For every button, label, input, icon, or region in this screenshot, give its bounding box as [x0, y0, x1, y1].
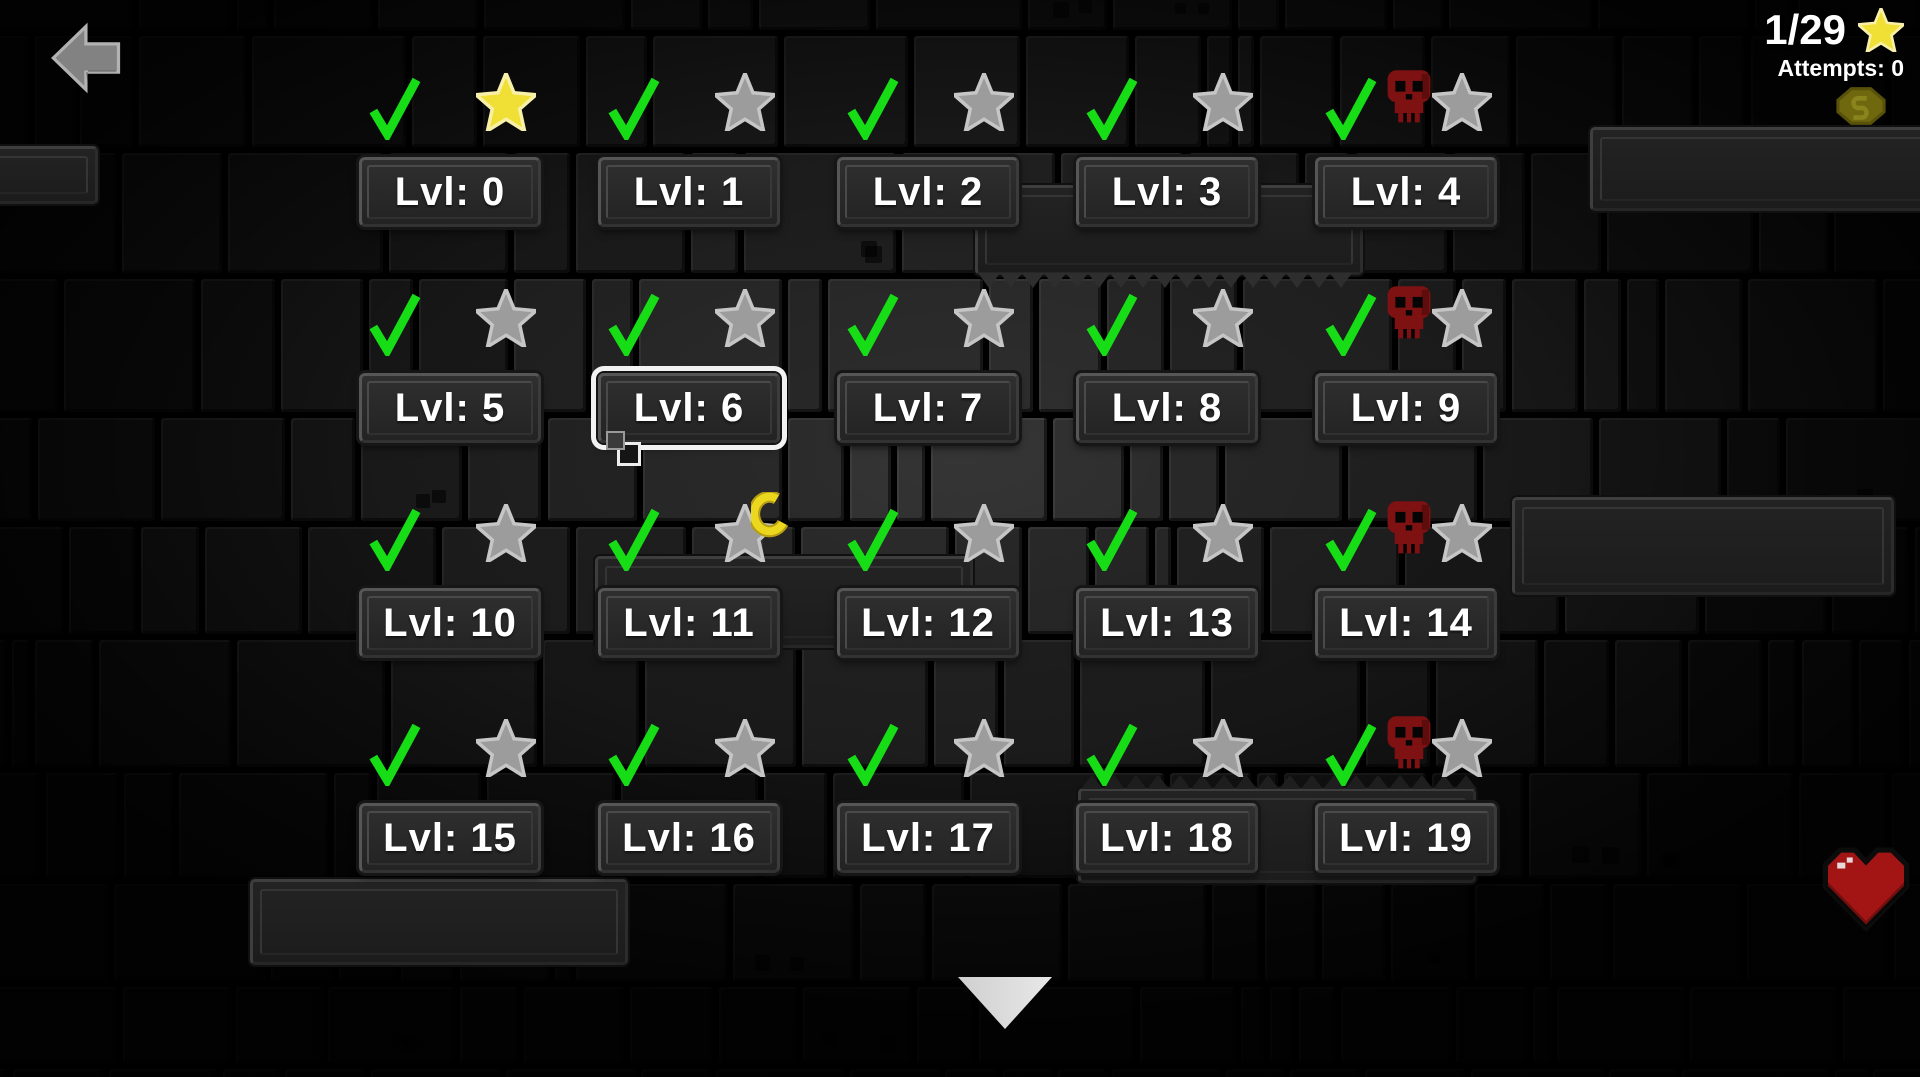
- level-button[interactable]: Lvl: 16: [598, 803, 780, 873]
- level-button[interactable]: Lvl: 6: [598, 373, 780, 443]
- level-button[interactable]: Lvl: 0: [359, 157, 541, 227]
- skull-icon: [1384, 65, 1434, 129]
- gold-star-icon: [476, 73, 536, 131]
- checkmark-icon: [368, 78, 422, 140]
- level-select-screen: Lvl: 0Lvl: 1Lvl: 2Lvl: 3Lvl: 4Lvl: 5Lvl:…: [0, 0, 1920, 1077]
- level-label: Lvl: 15: [383, 816, 517, 861]
- gray-star-icon: [715, 73, 775, 131]
- level-button[interactable]: Lvl: 4: [1315, 157, 1497, 227]
- checkmark-icon: [846, 78, 900, 140]
- level-label: Lvl: 16: [622, 816, 756, 861]
- checkmark-icon: [607, 509, 661, 571]
- gray-star-icon: [1193, 719, 1253, 777]
- gray-star-icon: [1193, 73, 1253, 131]
- level-label: Lvl: 4: [1351, 170, 1461, 215]
- level-button[interactable]: Lvl: 17: [837, 803, 1019, 873]
- level-label: Lvl: 2: [873, 170, 983, 215]
- skull-icon: [1384, 711, 1434, 775]
- checkmark-icon: [1324, 78, 1378, 140]
- checkmark-icon: [846, 509, 900, 571]
- level-button[interactable]: Lvl: 14: [1315, 588, 1497, 658]
- coin-icon: [751, 492, 789, 540]
- level-button[interactable]: Lvl: 10: [359, 588, 541, 658]
- skull-icon: [1384, 496, 1434, 560]
- star-counter: 1/29: [1764, 6, 1904, 54]
- checkmark-icon: [368, 294, 422, 356]
- level-button[interactable]: Lvl: 11: [598, 588, 780, 658]
- coin-icon: [1836, 86, 1886, 126]
- gray-star-icon: [476, 504, 536, 562]
- level-button[interactable]: Lvl: 7: [837, 373, 1019, 443]
- level-label: Lvl: 10: [383, 601, 517, 646]
- checkmark-icon: [1085, 724, 1139, 786]
- checkmark-icon: [846, 724, 900, 786]
- level-button[interactable]: Lvl: 5: [359, 373, 541, 443]
- level-label: Lvl: 11: [623, 601, 755, 646]
- level-button[interactable]: Lvl: 18: [1076, 803, 1258, 873]
- level-label: Lvl: 5: [395, 386, 505, 431]
- heart-icon: [1818, 840, 1914, 934]
- gray-star-icon: [1432, 73, 1492, 131]
- level-button[interactable]: Lvl: 9: [1315, 373, 1497, 443]
- checkmark-icon: [1085, 78, 1139, 140]
- gray-star-icon: [1193, 504, 1253, 562]
- level-label: Lvl: 7: [873, 386, 983, 431]
- checkmark-icon: [368, 724, 422, 786]
- skull-icon: [1384, 281, 1434, 345]
- checkmark-icon: [1085, 294, 1139, 356]
- level-label: Lvl: 19: [1339, 816, 1473, 861]
- level-button[interactable]: Lvl: 19: [1315, 803, 1497, 873]
- gray-star-icon: [954, 73, 1014, 131]
- gray-star-icon: [954, 719, 1014, 777]
- gray-star-icon: [954, 289, 1014, 347]
- level-button[interactable]: Lvl: 13: [1076, 588, 1258, 658]
- level-label: Lvl: 18: [1100, 816, 1234, 861]
- gray-star-icon: [715, 719, 775, 777]
- checkmark-icon: [368, 509, 422, 571]
- gold-star-icon: [1858, 8, 1904, 52]
- gray-star-icon: [715, 504, 775, 562]
- level-button[interactable]: Lvl: 1: [598, 157, 780, 227]
- checkmark-icon: [607, 78, 661, 140]
- level-label: Lvl: 12: [861, 601, 995, 646]
- level-button[interactable]: Lvl: 2: [837, 157, 1019, 227]
- level-grid: Lvl: 0Lvl: 1Lvl: 2Lvl: 3Lvl: 4Lvl: 5Lvl:…: [0, 0, 1920, 1077]
- back-button[interactable]: [48, 20, 126, 96]
- level-label: Lvl: 3: [1112, 170, 1222, 215]
- gray-star-icon: [715, 289, 775, 347]
- checkmark-icon: [1324, 724, 1378, 786]
- level-label: Lvl: 14: [1339, 601, 1473, 646]
- gray-star-icon: [476, 289, 536, 347]
- gray-star-icon: [954, 504, 1014, 562]
- checkmark-icon: [1085, 509, 1139, 571]
- checkmark-icon: [1324, 509, 1378, 571]
- level-button[interactable]: Lvl: 3: [1076, 157, 1258, 227]
- gray-star-icon: [476, 719, 536, 777]
- attempts-text: Attempts: 0: [1764, 55, 1904, 82]
- level-button[interactable]: Lvl: 8: [1076, 373, 1258, 443]
- player-cube-icon: [617, 442, 641, 466]
- checkmark-icon: [607, 294, 661, 356]
- level-label: Lvl: 8: [1112, 386, 1222, 431]
- gray-star-icon: [1432, 719, 1492, 777]
- level-label: Lvl: 17: [861, 816, 995, 861]
- checkmark-icon: [1324, 294, 1378, 356]
- level-button[interactable]: Lvl: 12: [837, 588, 1019, 658]
- level-label: Lvl: 9: [1351, 386, 1461, 431]
- hud-stats: 1/29 Attempts: 0: [1764, 6, 1904, 82]
- level-button[interactable]: Lvl: 15: [359, 803, 541, 873]
- star-count-text: 1/29: [1764, 6, 1846, 54]
- gray-star-icon: [1432, 504, 1492, 562]
- level-label: Lvl: 13: [1100, 601, 1234, 646]
- checkmark-icon: [607, 724, 661, 786]
- gray-star-icon: [1193, 289, 1253, 347]
- level-label: Lvl: 1: [634, 170, 744, 215]
- level-label: Lvl: 0: [395, 170, 505, 215]
- level-label: Lvl: 6: [634, 386, 744, 431]
- back-arrow-icon: [48, 20, 126, 96]
- gray-star-icon: [1432, 289, 1492, 347]
- checkmark-icon: [846, 294, 900, 356]
